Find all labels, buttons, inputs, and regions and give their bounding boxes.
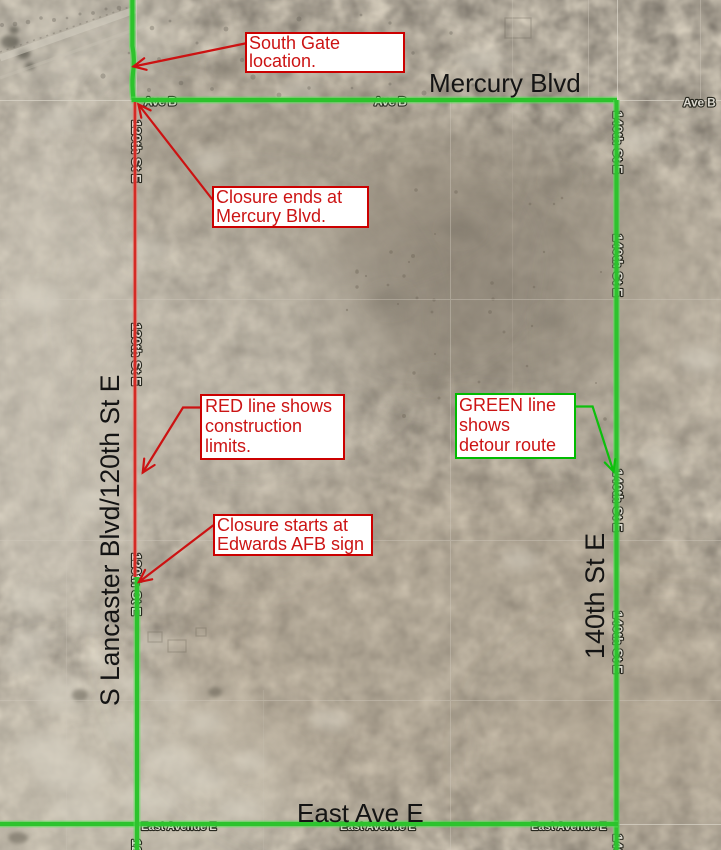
svg-text:Ave B: Ave B bbox=[683, 96, 716, 110]
